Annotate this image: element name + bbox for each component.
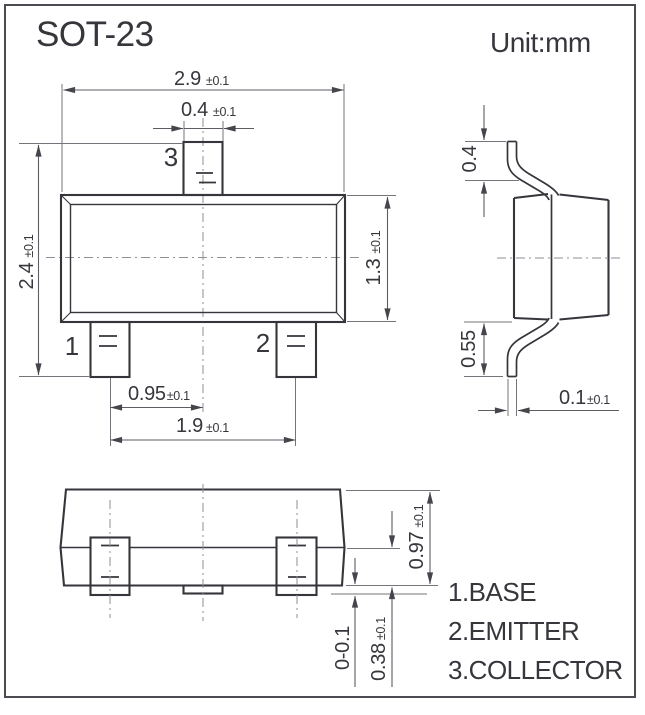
lead-profile-bottom bbox=[517, 323, 559, 377]
pin-legend: 1.BASE 2.EMITTER 3.COLLECTOR bbox=[448, 577, 623, 685]
body-edge bbox=[560, 315, 609, 320]
body-bevel bbox=[337, 313, 346, 323]
dim-standoff: 0-0.1 bbox=[332, 626, 354, 670]
legend-pin2: 2.EMITTER bbox=[448, 616, 579, 646]
dim-overall-height: 0.97±0.1 bbox=[406, 504, 428, 569]
unit-label: Unit:mm bbox=[490, 27, 591, 58]
dim-lead-pitch: 0.95±0.1 bbox=[128, 383, 190, 405]
drawing-page: SOT-23 Unit:mm 3 bbox=[0, 0, 645, 715]
side-view: 0.4 0.55 0.1±0.1 bbox=[458, 105, 623, 416]
dim-body-width: 2.9±0.1 bbox=[174, 68, 229, 90]
body-bevel bbox=[337, 195, 346, 205]
pin3-number: 3 bbox=[164, 142, 178, 172]
dim-lead-width: 0.38±0.1 bbox=[368, 617, 390, 681]
legend-pin3: 3.COLLECTOR bbox=[448, 655, 623, 685]
bottom-view: 0.97±0.1 0.38±0.1 0-0.1 bbox=[61, 484, 441, 687]
dim-tab-width: 0.4±0.1 bbox=[181, 99, 236, 121]
pin2-number: 2 bbox=[256, 328, 270, 358]
body-edge bbox=[514, 194, 548, 198]
lead-profile-top bbox=[517, 142, 559, 196]
sot23-drawing: SOT-23 Unit:mm 3 bbox=[0, 0, 645, 715]
body-bevel bbox=[61, 195, 71, 205]
lead-profile-top bbox=[508, 142, 550, 201]
dim-body-height: 1.3±0.1 bbox=[363, 230, 385, 285]
dim-lead-bottom-height: 0.55 bbox=[458, 330, 480, 368]
body-edge bbox=[560, 195, 609, 201]
dim-lead-span: 1.9±0.1 bbox=[176, 415, 229, 437]
pin1-number: 1 bbox=[65, 331, 79, 361]
body-bevel bbox=[61, 313, 71, 323]
dim-total-height: 2.4±0.1 bbox=[16, 234, 38, 289]
dim-lead-top-height: 0.4 bbox=[459, 145, 481, 172]
body-edge bbox=[514, 318, 548, 320]
pin1-lead bbox=[91, 322, 130, 377]
legend-pin1: 1.BASE bbox=[448, 577, 536, 607]
pin2-lead bbox=[277, 322, 317, 377]
page-title: SOT-23 bbox=[36, 15, 154, 54]
dim-lead-thickness: 0.1±0.1 bbox=[559, 387, 610, 409]
lead-profile-bottom bbox=[508, 318, 550, 377]
pin3-lead bbox=[184, 142, 223, 195]
front-view: 3 1 2 2.9±0.1 0.4±0.1 2.4±0.1 1.3± bbox=[16, 68, 396, 446]
